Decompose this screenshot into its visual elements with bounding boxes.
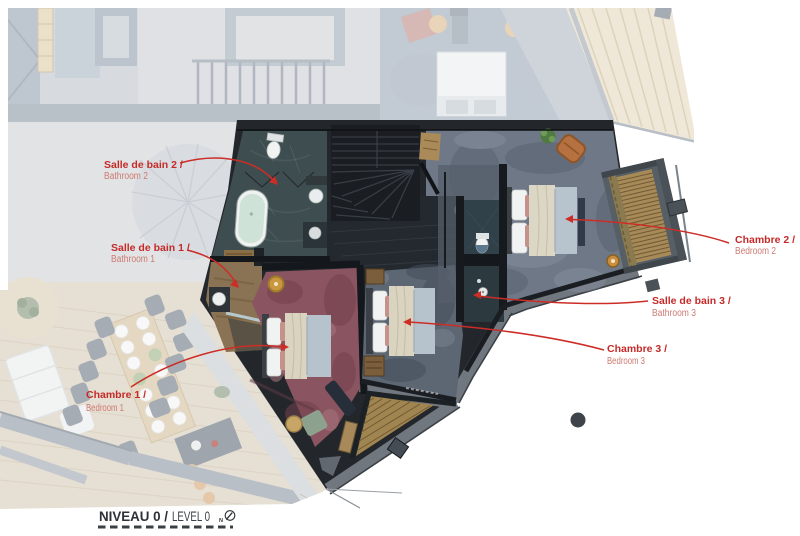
svg-text:Bathroom 1: Bathroom 1 xyxy=(111,254,155,265)
svg-text:Salle de bain 2 /: Salle de bain 2 / xyxy=(104,159,183,171)
svg-text:Chambre 2 /: Chambre 2 / xyxy=(735,234,795,246)
svg-text:Salle de bain 1 /: Salle de bain 1 / xyxy=(111,242,190,254)
svg-text:Chambre 1 /: Chambre 1 / xyxy=(86,389,146,401)
svg-text:LEVEL 0: LEVEL 0 xyxy=(172,508,210,524)
svg-text:Bedroom 1: Bedroom 1 xyxy=(86,403,124,414)
svg-text:Salle de bain 3 /: Salle de bain 3 / xyxy=(652,295,731,307)
svg-text:Chambre 3 /: Chambre 3 / xyxy=(607,343,667,355)
svg-text:Bathroom 3: Bathroom 3 xyxy=(652,308,696,319)
svg-text:Bedroom 3: Bedroom 3 xyxy=(607,356,645,367)
svg-text:Bathroom 2: Bathroom 2 xyxy=(104,171,148,182)
svg-text:N: N xyxy=(219,518,223,524)
svg-text:NIVEAU 0 /: NIVEAU 0 / xyxy=(99,508,168,524)
svg-text:Bedroom 2: Bedroom 2 xyxy=(735,246,776,257)
